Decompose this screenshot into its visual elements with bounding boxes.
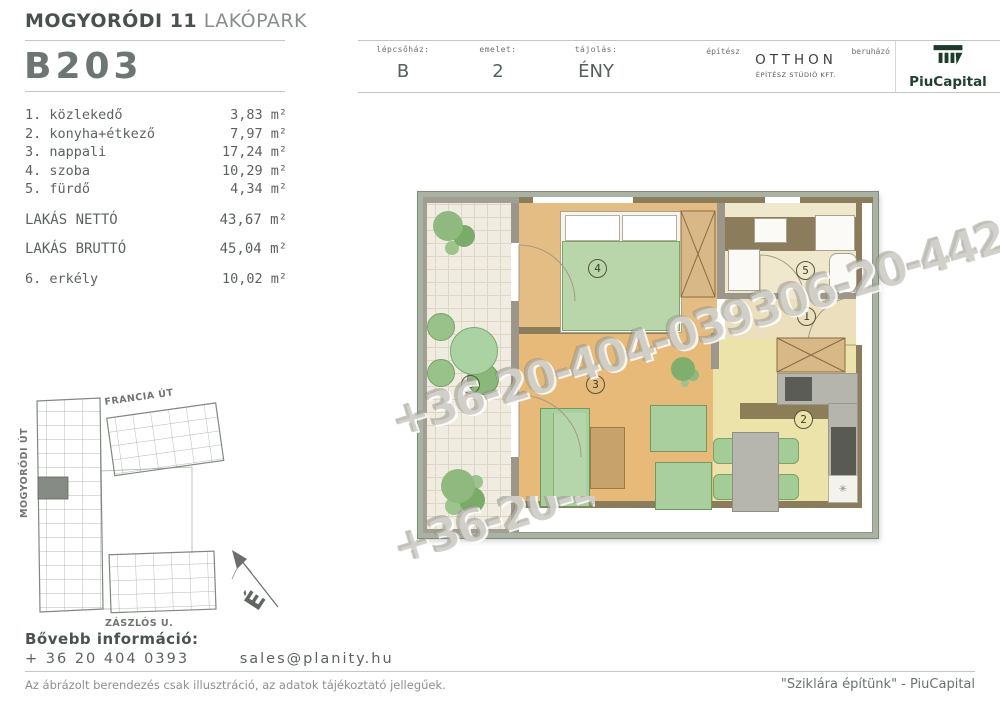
- street-label-top: FRANCIA ÚT: [104, 386, 174, 408]
- footer-divider: [25, 671, 975, 672]
- room-name: 3. nappali: [25, 143, 106, 162]
- room-area: 17,24 m²: [222, 143, 287, 162]
- meta-cell-orientation: tájolás: ÉNY: [551, 41, 641, 92]
- room-name: 4. szoba: [25, 162, 90, 181]
- meta-cell-floor: emelet: 2: [453, 41, 543, 92]
- room-label-bathroom: 5: [796, 261, 815, 280]
- room-name: 6. erkély: [25, 271, 98, 287]
- room-row: 2. konyha+étkező 7,97 m²: [25, 125, 287, 144]
- doors-overlay: [423, 197, 873, 533]
- room-row: 1. közlekedő 3,83 m²: [25, 106, 287, 125]
- room-name: 1. közlekedő: [25, 106, 123, 125]
- room-name: 5. fürdő: [25, 180, 90, 199]
- architect-subname: ÉPÍTÉSZ STÚDIÓ KFT.: [746, 71, 846, 79]
- orientation-label: tájolás:: [551, 45, 641, 54]
- project-name: MOGYORÓDI 11: [25, 10, 197, 32]
- balcony-row: 6. erkély 10,02 m²: [25, 271, 287, 287]
- page-title: MOGYORÓDI 11 LAKÓPARK: [25, 10, 307, 32]
- room-name: 2. konyha+étkező: [25, 125, 155, 144]
- contact-heading: Bővebb információ:: [25, 630, 199, 648]
- room-area: 4,34 m²: [230, 180, 287, 199]
- architect-logo: OTTHON ÉPÍTÉSZ STÚDIÓ KFT.: [746, 52, 846, 103]
- unit-id: B203: [24, 46, 143, 87]
- room-area: 7,97 m²: [230, 125, 287, 144]
- title-divider: [25, 40, 285, 41]
- north-label: É: [238, 586, 271, 616]
- total-net-row: LAKÁS NETTÓ 43,67 m²: [25, 212, 287, 228]
- floor-plan: ✳ 1 2 3 4 5 6: [418, 192, 878, 538]
- piucapital-column-icon: [931, 44, 965, 70]
- room-area: 3,83 m²: [230, 106, 287, 125]
- meta-cell-staircase: lépcsőház: B: [358, 41, 448, 92]
- disclaimer-text: Az ábrázolt berendezés csak illusztráció…: [25, 678, 446, 692]
- total-name: LAKÁS NETTÓ: [25, 212, 118, 228]
- room-row: 5. fürdő 4,34 m²: [25, 180, 287, 199]
- project-suffix: LAKÓPARK: [204, 10, 307, 32]
- room-label-balcony: 6: [461, 375, 480, 394]
- building-outline: [37, 398, 224, 613]
- room-list: 1. közlekedő 3,83 m² 2. konyha+étkező 7,…: [25, 106, 287, 287]
- total-name: LAKÁS BRUTTÓ: [25, 241, 126, 257]
- street-label-left: MOGYORÓDI ÚT: [18, 428, 30, 518]
- total-area: 45,04 m²: [220, 241, 287, 257]
- floor-value: 2: [453, 61, 543, 82]
- room-label-hallway: 1: [797, 307, 816, 326]
- wardrobe: [681, 211, 845, 372]
- contact-phone: + 36 20 404 0393: [25, 651, 189, 667]
- contact-line: + 36 20 404 0393 sales@planity.hu: [25, 651, 394, 667]
- total-area: 43,67 m²: [220, 212, 287, 228]
- staircase-label: lépcsőház:: [358, 45, 448, 54]
- street-label-bottom: ZÁSZLÓS U.: [105, 617, 173, 629]
- staircase-value: B: [358, 61, 448, 82]
- site-map: FRANCIA ÚT MOGYORÓDI ÚT ZÁSZLÓS U. É: [10, 383, 310, 633]
- north-compass-icon: É: [232, 550, 278, 615]
- highlighted-unit: [38, 477, 68, 499]
- room-label-bedroom: 4: [588, 259, 607, 278]
- architect-name: OTTHON: [746, 52, 846, 68]
- apartment-datasheet: { "header": { "project_title_bold": "MOG…: [0, 0, 1000, 707]
- architect-label: építész: [688, 47, 740, 56]
- floor-label: emelet:: [453, 45, 543, 54]
- room-label-living: 3: [586, 375, 605, 394]
- room-area: 10,29 m²: [222, 162, 287, 181]
- room-label-kitchen: 2: [794, 410, 813, 429]
- room-row: 4. szoba 10,29 m²: [25, 162, 287, 181]
- meta-table: lépcsőház: B emelet: 2 tájolás: ÉNY épít…: [358, 40, 1000, 93]
- developer-logo: PiuCapital: [895, 41, 1000, 92]
- unit-divider: [25, 91, 285, 92]
- total-gross-row: LAKÁS BRUTTÓ 45,04 m²: [25, 241, 287, 257]
- room-row: 3. nappali 17,24 m²: [25, 143, 287, 162]
- developer-label: beruházó: [846, 47, 890, 56]
- contact-email: sales@planity.hu: [240, 651, 394, 667]
- orientation-value: ÉNY: [551, 61, 641, 82]
- room-area: 10,02 m²: [222, 271, 287, 287]
- developer-name: PiuCapital: [896, 74, 1000, 90]
- slogan-text: "Sziklára építünk" - PiuCapital: [781, 677, 975, 692]
